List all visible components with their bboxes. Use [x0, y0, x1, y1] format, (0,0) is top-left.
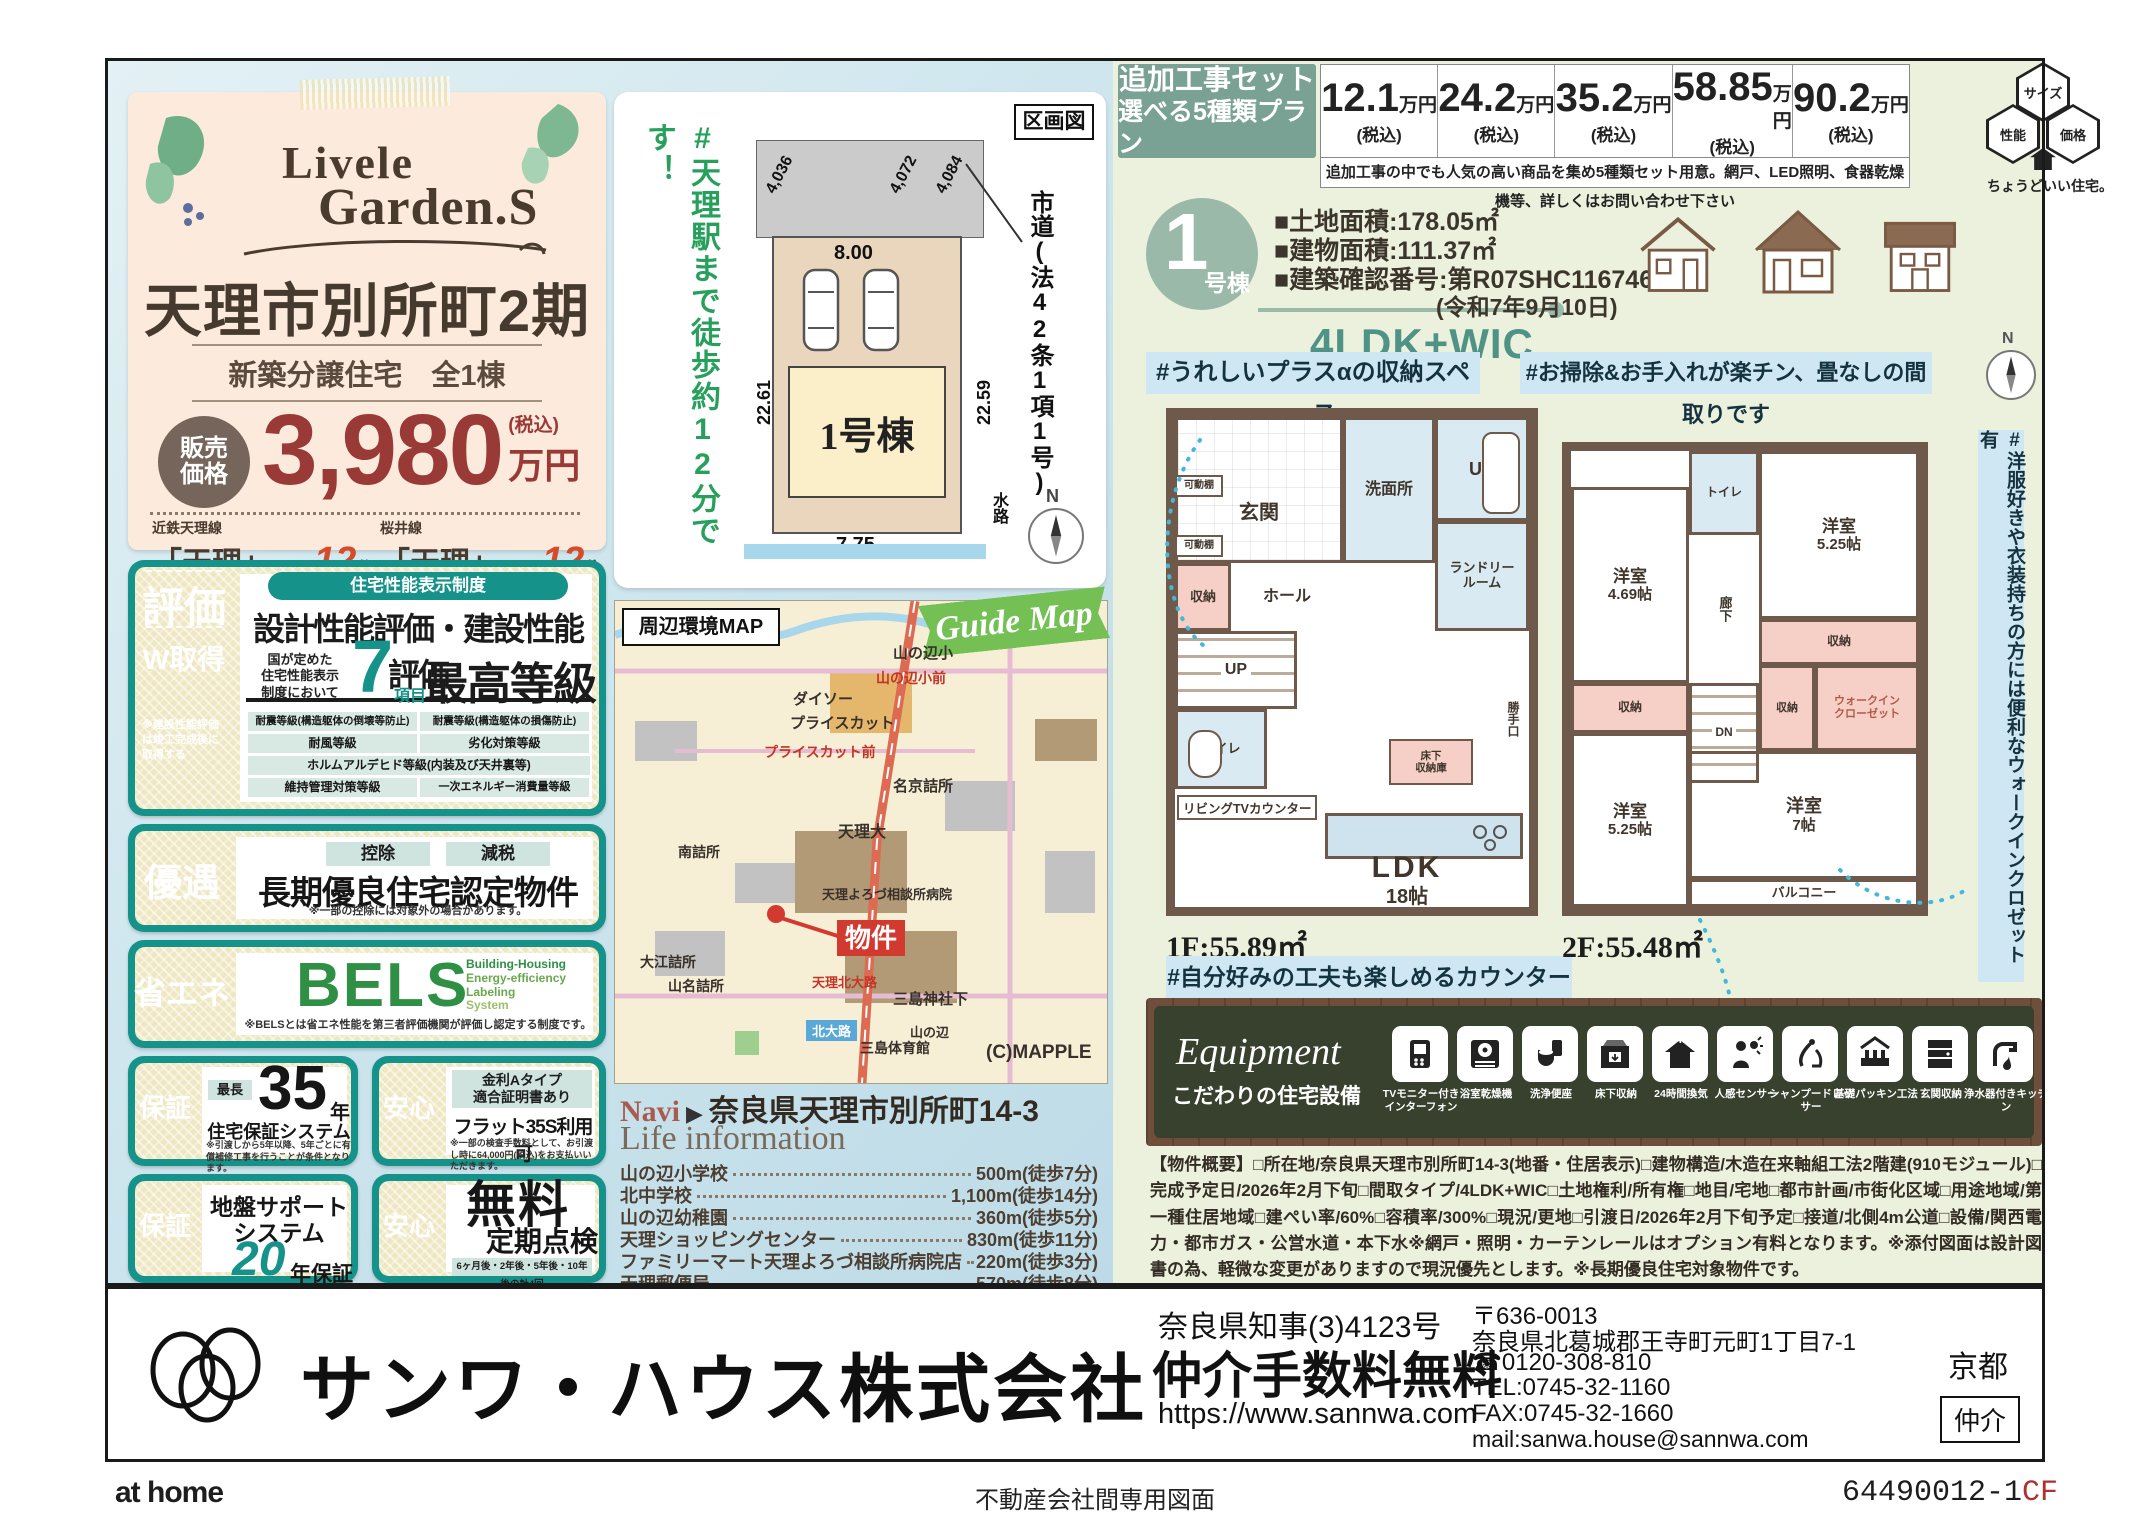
lot-water-label: 水路: [986, 492, 1010, 540]
bels-logo: BELS: [296, 950, 469, 1021]
room-yoshitsu-7: 洋室 7帖: [1689, 751, 1919, 879]
price-num: 35.2: [1556, 76, 1634, 121]
price-tax: (税込): [508, 410, 580, 437]
equipment-subtitle: こだわりの住宅設備: [1172, 1080, 1361, 1110]
lot-road-label: 市道(法42条1項1号): [1022, 190, 1057, 520]
map-label-yamanobe-mae: 山の辺小前: [876, 668, 946, 688]
price-num: 58.85: [1673, 65, 1773, 110]
house-illustration-3: [1872, 210, 1968, 300]
company-url[interactable]: https://www.sannwa.com: [1158, 1398, 1477, 1431]
room-ldk-size: 18帖: [1386, 886, 1428, 909]
room-7-label: 洋室: [1786, 796, 1822, 817]
footer-code-suffix: CF: [2022, 1476, 2058, 1510]
packing-method-icon: [1847, 1026, 1903, 1082]
map-label-mishima-jinja: 三島神社下: [893, 988, 968, 1009]
room-toilet-1f: トイレ: [1175, 709, 1267, 789]
water-purifier-label: 浄水器付きキッチン: [1963, 1088, 2049, 1114]
compass-icon: [1028, 508, 1084, 564]
price-row: 3,980 (税込) 万円: [262, 400, 580, 500]
price-badge-line2: 価格: [180, 462, 228, 488]
map-label-tenridai: 天理大: [838, 818, 886, 842]
map-mapple-credit: (C)MAPPLE: [986, 1042, 1092, 1064]
map-label-minami: 南詰所: [678, 842, 720, 862]
hyoka-dash1: [146, 570, 222, 572]
teiki-title1: 無料: [466, 1180, 570, 1230]
addon-title1: 追加工事セット: [1119, 62, 1315, 97]
price-unit: 万円: [508, 437, 580, 489]
hyoka-num-unit: 項目: [394, 682, 426, 706]
price-divider: [150, 512, 580, 515]
dotted-leader: [841, 1239, 962, 1242]
addon-note: 追加工事の中でも人気の高い商品を集め5種類セット用意。網戸、LED照明、食器乾燥…: [1320, 158, 1910, 188]
equipment-title: Equipment: [1176, 1030, 1341, 1074]
flyer-page: Livele Garden.S 天理市別所町2期 新築分譲住宅 全1棟 販売 価…: [0, 0, 2150, 1517]
unit-circle: 1 号棟: [1146, 198, 1258, 310]
hyoka-cell-7: 一次エネルギー消費量等級: [420, 778, 589, 797]
flat35-note: ※一部の検査手数料として、お引渡し時に64,000円(税込)をお支払いいただきま…: [450, 1138, 596, 1173]
price-num: 12.1: [1321, 76, 1399, 121]
station-line-2: 桜井線: [380, 518, 600, 538]
lot-corner-label: 区画図: [1014, 104, 1094, 140]
room-senmen-label: 洗面所: [1365, 481, 1413, 499]
room-toilet-2f: トイレ: [1689, 451, 1759, 535]
room-7-size: 7帖: [1792, 817, 1815, 834]
room-rouka-label: 廊下: [1717, 596, 1732, 622]
teiki-note: 6ヶ月後・2年後・5年後・10年後の計4回: [452, 1258, 592, 1276]
hashtag-cleaning: #お掃除&お手入れが楽チン、畳なしの間取りです: [1520, 352, 1932, 394]
hyoka-pill: 住宅性能表示制度: [268, 572, 568, 600]
ventilation-24h-icon: 24H: [1652, 1026, 1708, 1082]
hyoka-cell-5: ホルムアルデヒド等級(内装及び天井裏等): [248, 756, 590, 775]
bels-sub2: Energy-efficiency: [466, 972, 566, 986]
stairs-up: UP: [1175, 631, 1297, 709]
station-line-1: 近鉄天理線: [152, 518, 372, 538]
company-mail[interactable]: mail:sanwa.house@sannwa.com: [1472, 1426, 1809, 1453]
room-yoshitsu-469: 洋室 4.69帖: [1571, 487, 1689, 683]
room-469-label: 洋室: [1613, 567, 1647, 587]
room-yoshitsu-525-bottom: 洋室 5.25帖: [1571, 733, 1689, 907]
room-wic-label1: ウォークイン: [1834, 695, 1900, 708]
unit-number: 1: [1164, 200, 1209, 284]
room-kadana-2: 可動棚: [1175, 535, 1223, 557]
room-tv-counter-label: リビングTVカウンター: [1177, 795, 1317, 820]
flat35-pill2: 適合証明書あり: [452, 1089, 592, 1106]
map-label-pricecut-mae: プライスカット前: [764, 742, 876, 762]
logo-swirl: [240, 236, 550, 262]
price-tax: (税込): [1591, 121, 1636, 146]
map-label-yorozu: 天理よろづ相談所病院: [822, 884, 952, 903]
hosho35-badge: 保証: [134, 1088, 196, 1125]
hyoka-cell-6: 維持管理対策等級: [248, 778, 417, 797]
room-shuno-2f-2: 収納: [1759, 619, 1919, 665]
lot-dim-right: 22.59: [974, 380, 995, 425]
dotted-leader: [967, 1261, 971, 1264]
brand-logo-line2: Garden.S: [318, 178, 538, 237]
entrance-storage-icon: [1912, 1026, 1968, 1082]
lot-building-label: 1号棟: [819, 405, 914, 460]
intercom-icon: [1392, 1026, 1448, 1082]
flat35-pill1: 金利Aタイプ: [452, 1072, 592, 1089]
map-label-daiso: ダイソー: [793, 688, 853, 709]
room-senmen: 洗面所: [1343, 417, 1435, 563]
room-shuno-1f: 収納: [1175, 563, 1231, 631]
room-469-size: 4.69帖: [1608, 586, 1652, 603]
property-title: 天理市別所町2期: [140, 264, 594, 348]
hyoka-lead3: 制度において: [248, 685, 352, 701]
dotted-leader: [733, 1173, 971, 1176]
hyoka-cell-3: 耐風等級: [248, 734, 417, 753]
lot-waterway: [744, 544, 986, 559]
lot-dim-left: 22.61: [754, 380, 775, 425]
map-label-yamana: 山名詰所: [668, 976, 724, 996]
company-branch: 京都: [1948, 1342, 2008, 1386]
company-freedial: ☎0120-308-810: [1472, 1348, 1651, 1377]
lot-dim-top: 8.00: [834, 242, 873, 265]
hexagon-seino-label: 性能: [2000, 125, 2026, 144]
shampoo-dresser-icon: [1782, 1026, 1838, 1082]
dotted-leader: [697, 1195, 946, 1198]
company-logo: [135, 1312, 285, 1432]
lot-compass-n: N: [1046, 486, 1059, 507]
room-laundry-label2: ルーム: [1463, 576, 1502, 591]
house-illustration-1: [1630, 208, 1726, 300]
hyoka-cell-2: 耐震等級(構造躯体の損傷防止): [420, 712, 589, 731]
floorplan-compass-n: N: [2002, 330, 2014, 348]
flat35-pill: 金利Aタイプ 適合証明書あり: [452, 1070, 592, 1108]
price-man: 万円: [1399, 90, 1437, 117]
company-type-box: 仲介: [1940, 1396, 2020, 1443]
addon-title2: 選べる5種類プラン: [1118, 97, 1316, 160]
hashtag-wic-text: #洋服好きや衣装持ちの方には便利なウォークインクロゼット有: [1974, 430, 2028, 982]
lot-building: 1号棟: [788, 366, 946, 498]
room-wic-label2: クローゼット: [1834, 708, 1900, 721]
lot-leader-line: [960, 150, 1030, 250]
price-num: 24.2: [1438, 76, 1516, 121]
room-rouka: 廊下: [1689, 535, 1759, 683]
bels-note: ※BELSとは省エネ性能を第三者評価機関が評価し認定する制度です。: [244, 1016, 592, 1032]
company-tel: TEL:0745-32-1160: [1472, 1374, 1670, 1402]
room-toilet-2f-label: トイレ: [1706, 486, 1742, 500]
addon-price-5: 90.2万円 (税込): [1793, 65, 1909, 157]
price-man: 万円: [1773, 79, 1792, 133]
map-label-oe: 大江詰所: [640, 952, 696, 972]
yugu-note: ※一部の控除には対象外の場合があります。: [246, 902, 590, 918]
stairs-dn-label: DN: [1712, 726, 1735, 740]
toilet-shape: [1188, 730, 1222, 778]
hyoka-grade: 最高等級: [424, 648, 596, 712]
room-ldk-label: LDK: [1372, 851, 1443, 886]
price-man: 万円: [1633, 90, 1671, 117]
bels-sub1: Building-Housing: [466, 958, 566, 972]
room-wic: ウォークイン クローゼット: [1815, 665, 1919, 751]
hexagon-size-label: サイズ: [2024, 83, 2063, 102]
room-shuno-2f-1: 収納: [1571, 683, 1689, 733]
addon-prices: 12.1万円 (税込) 24.2万円 (税込) 35.2万円 (税込) 58.8…: [1320, 64, 1910, 158]
hashtag-kitchen: #自分好みの工夫も楽しめるカウンターキッチン: [1166, 956, 1572, 998]
dotted-leader: [733, 1217, 971, 1220]
room-525t-label: 洋室: [1822, 517, 1856, 537]
washlet-icon: [1522, 1026, 1578, 1082]
bels-sublines: Building-Housing Energy-efficiency Label…: [466, 958, 566, 1013]
room-laundry: ランドリー ルーム: [1435, 521, 1529, 631]
teiki-title2: 定期点検: [486, 1228, 598, 1256]
map-label-yamanobe-sho: 山の辺小: [893, 642, 953, 663]
hyoka-lead1: 国が定めた: [248, 652, 352, 668]
unit-suffix: 号棟: [1204, 264, 1250, 298]
map-label-meikyo: 名京詰所: [893, 775, 953, 796]
hyoka-dash2: [146, 626, 222, 628]
price-badge: 販売 価格: [158, 416, 250, 508]
hosho35-pill: 最長: [208, 1080, 252, 1100]
hyoka-grid: 耐震等級(構造躯体の倒壊等防止) 耐震等級(構造躯体の損傷防止) 耐風等級 劣化…: [248, 712, 590, 797]
map-label-kitaoji: 北大路: [806, 1020, 857, 1041]
yugu-pill2: 減税: [446, 842, 550, 866]
addon-price-3: 35.2万円 (税込): [1555, 65, 1672, 157]
price-man: 万円: [1871, 90, 1909, 117]
price-man: 万円: [1516, 90, 1554, 117]
footer-code-num: 64490012-1: [1842, 1476, 2022, 1510]
company-fax: FAX:0745-32-1660: [1472, 1400, 1673, 1428]
bath-dryer-icon: [1457, 1026, 1513, 1082]
hashtag-storage: #うれしいプラスαの収納スペース: [1146, 352, 1480, 394]
hosho35-num: 35: [258, 1058, 327, 1120]
bathtub-shape: [1482, 432, 1520, 514]
hyoka-badge2: W取得: [138, 638, 230, 678]
room-genkan-label: 玄関: [1239, 502, 1279, 525]
room-laundry-label1: ランドリー: [1449, 561, 1514, 576]
price-tax: (税込): [1710, 133, 1755, 158]
addon-price-1: 12.1万円 (税込): [1321, 65, 1438, 157]
bels-sub3: Labeling: [466, 986, 566, 1000]
leaf-decoration-left: [136, 108, 232, 238]
floorplan-2f: 洋室 4.69帖 トイレ 洋室 5.25帖 廊下 DN 収納 収納 収納 ウォー…: [1562, 442, 1928, 916]
map-label-tenri-kitaoji: 天理北大路: [812, 972, 877, 991]
stove-icon: [1470, 824, 1514, 852]
floor-storage-icon: [1587, 1026, 1643, 1082]
hyoka-cell-1: 耐震等級(構造躯体の倒壊等防止): [248, 712, 417, 731]
room-shuno-2f-3: 収納: [1759, 665, 1815, 751]
car-icon-1: [802, 268, 840, 352]
room-kadana-1: 可動棚: [1175, 475, 1223, 497]
addon-price-4: 58.85万円 (税込): [1673, 65, 1793, 157]
room-balcony: バルコニー: [1689, 879, 1919, 907]
hyoka-num: 7: [352, 630, 393, 704]
stairs-up-label: UP: [1221, 661, 1251, 679]
ventilation-24h-badge: 24H: [1652, 1032, 1708, 1046]
washi-tape: [300, 76, 451, 110]
bels-sub4: System: [466, 999, 566, 1013]
map-label-mishima-gym: 三島体育館: [860, 1038, 930, 1058]
hashtag-wic-banner: #洋服好きや衣装持ちの方には便利なウォークインクロゼット有: [1978, 430, 2024, 982]
company-name: サンワ・ハウス株式会社: [300, 1330, 1147, 1437]
room-ldk: LDK 18帖: [1285, 853, 1529, 907]
room-yoshitsu-525-top: 洋室 5.25帖: [1759, 451, 1919, 619]
car-icon-2: [862, 268, 900, 352]
price-tax: (税込): [1356, 121, 1401, 146]
map-title: 周辺環境MAP: [622, 608, 780, 646]
footer-center-text: 不動産会社間専用図面: [975, 1480, 1215, 1515]
addon-price-2: 24.2万円 (税込): [1438, 65, 1555, 157]
hyoka-badge-note: ※建設性能評価は竣工完成後に取得する: [142, 718, 226, 763]
hyoka-lead: 国が定めた 住宅性能表示 制度において: [248, 652, 352, 701]
lot-hashtag: #天理駅まで徒歩約12分です！: [636, 122, 724, 574]
jiban-num: 20: [232, 1236, 285, 1284]
water-purifier-icon: [1977, 1026, 2033, 1082]
addon-header: 追加工事セット 選べる5種類プラン: [1118, 64, 1316, 158]
price-value: 3,980: [262, 400, 502, 500]
room-525b-label: 洋室: [1613, 802, 1647, 822]
map-label-yamanobe: 山の辺: [910, 1022, 949, 1041]
yugu-pill1: 控除: [326, 842, 430, 866]
motion-sensor-icon: [1717, 1026, 1773, 1082]
teiki-badge: 安心: [378, 1206, 440, 1243]
hexagon-logo-caption: ちょうどいい住宅。: [1968, 176, 2132, 196]
price-tax: (税込): [1828, 121, 1873, 146]
room-yukashita-label2: 収納庫: [1415, 762, 1447, 774]
floorplan-1f: 玄関 可動棚 可動棚 洗面所 UB ランドリー ルーム 収納 ホール UP トイ…: [1166, 408, 1538, 916]
hyoka-lead2: 住宅性能表示: [248, 668, 352, 684]
hexagon-kakaku-label: 価格: [2060, 125, 2086, 144]
room-525b-size: 5.25帖: [1608, 821, 1652, 838]
price-num: 90.2: [1793, 76, 1871, 121]
room-yukashita: 床下 収納庫: [1389, 739, 1473, 785]
hosho35-note: ※引渡しから5年以降、5年ごとに有償補修工事を行うことが条件となります。: [206, 1140, 352, 1175]
jiban-badge: 保証: [134, 1206, 196, 1243]
yugu-badge: 優遇: [138, 852, 226, 907]
shoene-badge: 省エネ: [134, 968, 230, 1014]
room-yukashita-label1: 床下: [1421, 750, 1442, 762]
price-tax: (税込): [1474, 121, 1519, 146]
floorplan-compass-icon: [1986, 350, 2036, 400]
room-katteguchi-label: 勝手口: [1505, 701, 1522, 765]
property-overview-text: 【物件概要】□所在地/奈良県天理市別所町14-3(地番・住居表示)□建物構造/木…: [1150, 1152, 2042, 1284]
flat35-badge: 安心: [378, 1088, 440, 1125]
footer-code: 64490012-1CF: [1842, 1476, 2058, 1510]
jiban-unit: 年保証: [290, 1258, 353, 1288]
hyoka-cell-4: 劣化対策等級: [420, 734, 589, 753]
house-illustration-2: [1748, 204, 1848, 300]
unit-confirmation-date: (令和7年9月10日): [1436, 288, 1617, 322]
room-ub: UB: [1435, 417, 1529, 521]
map-label-pricecut: プライスカット: [790, 712, 895, 733]
room-hall: ホール: [1231, 563, 1343, 631]
price-badge-line1: 販売: [180, 436, 228, 462]
map-bukken-marker: 物件: [837, 920, 905, 956]
athome-logo: at home: [115, 1476, 223, 1510]
life-info-header: Life information: [620, 1120, 846, 1158]
floor2-area-label: 2F:55.48㎡: [1562, 922, 1703, 966]
room-525t-size: 5.25帖: [1817, 536, 1861, 553]
